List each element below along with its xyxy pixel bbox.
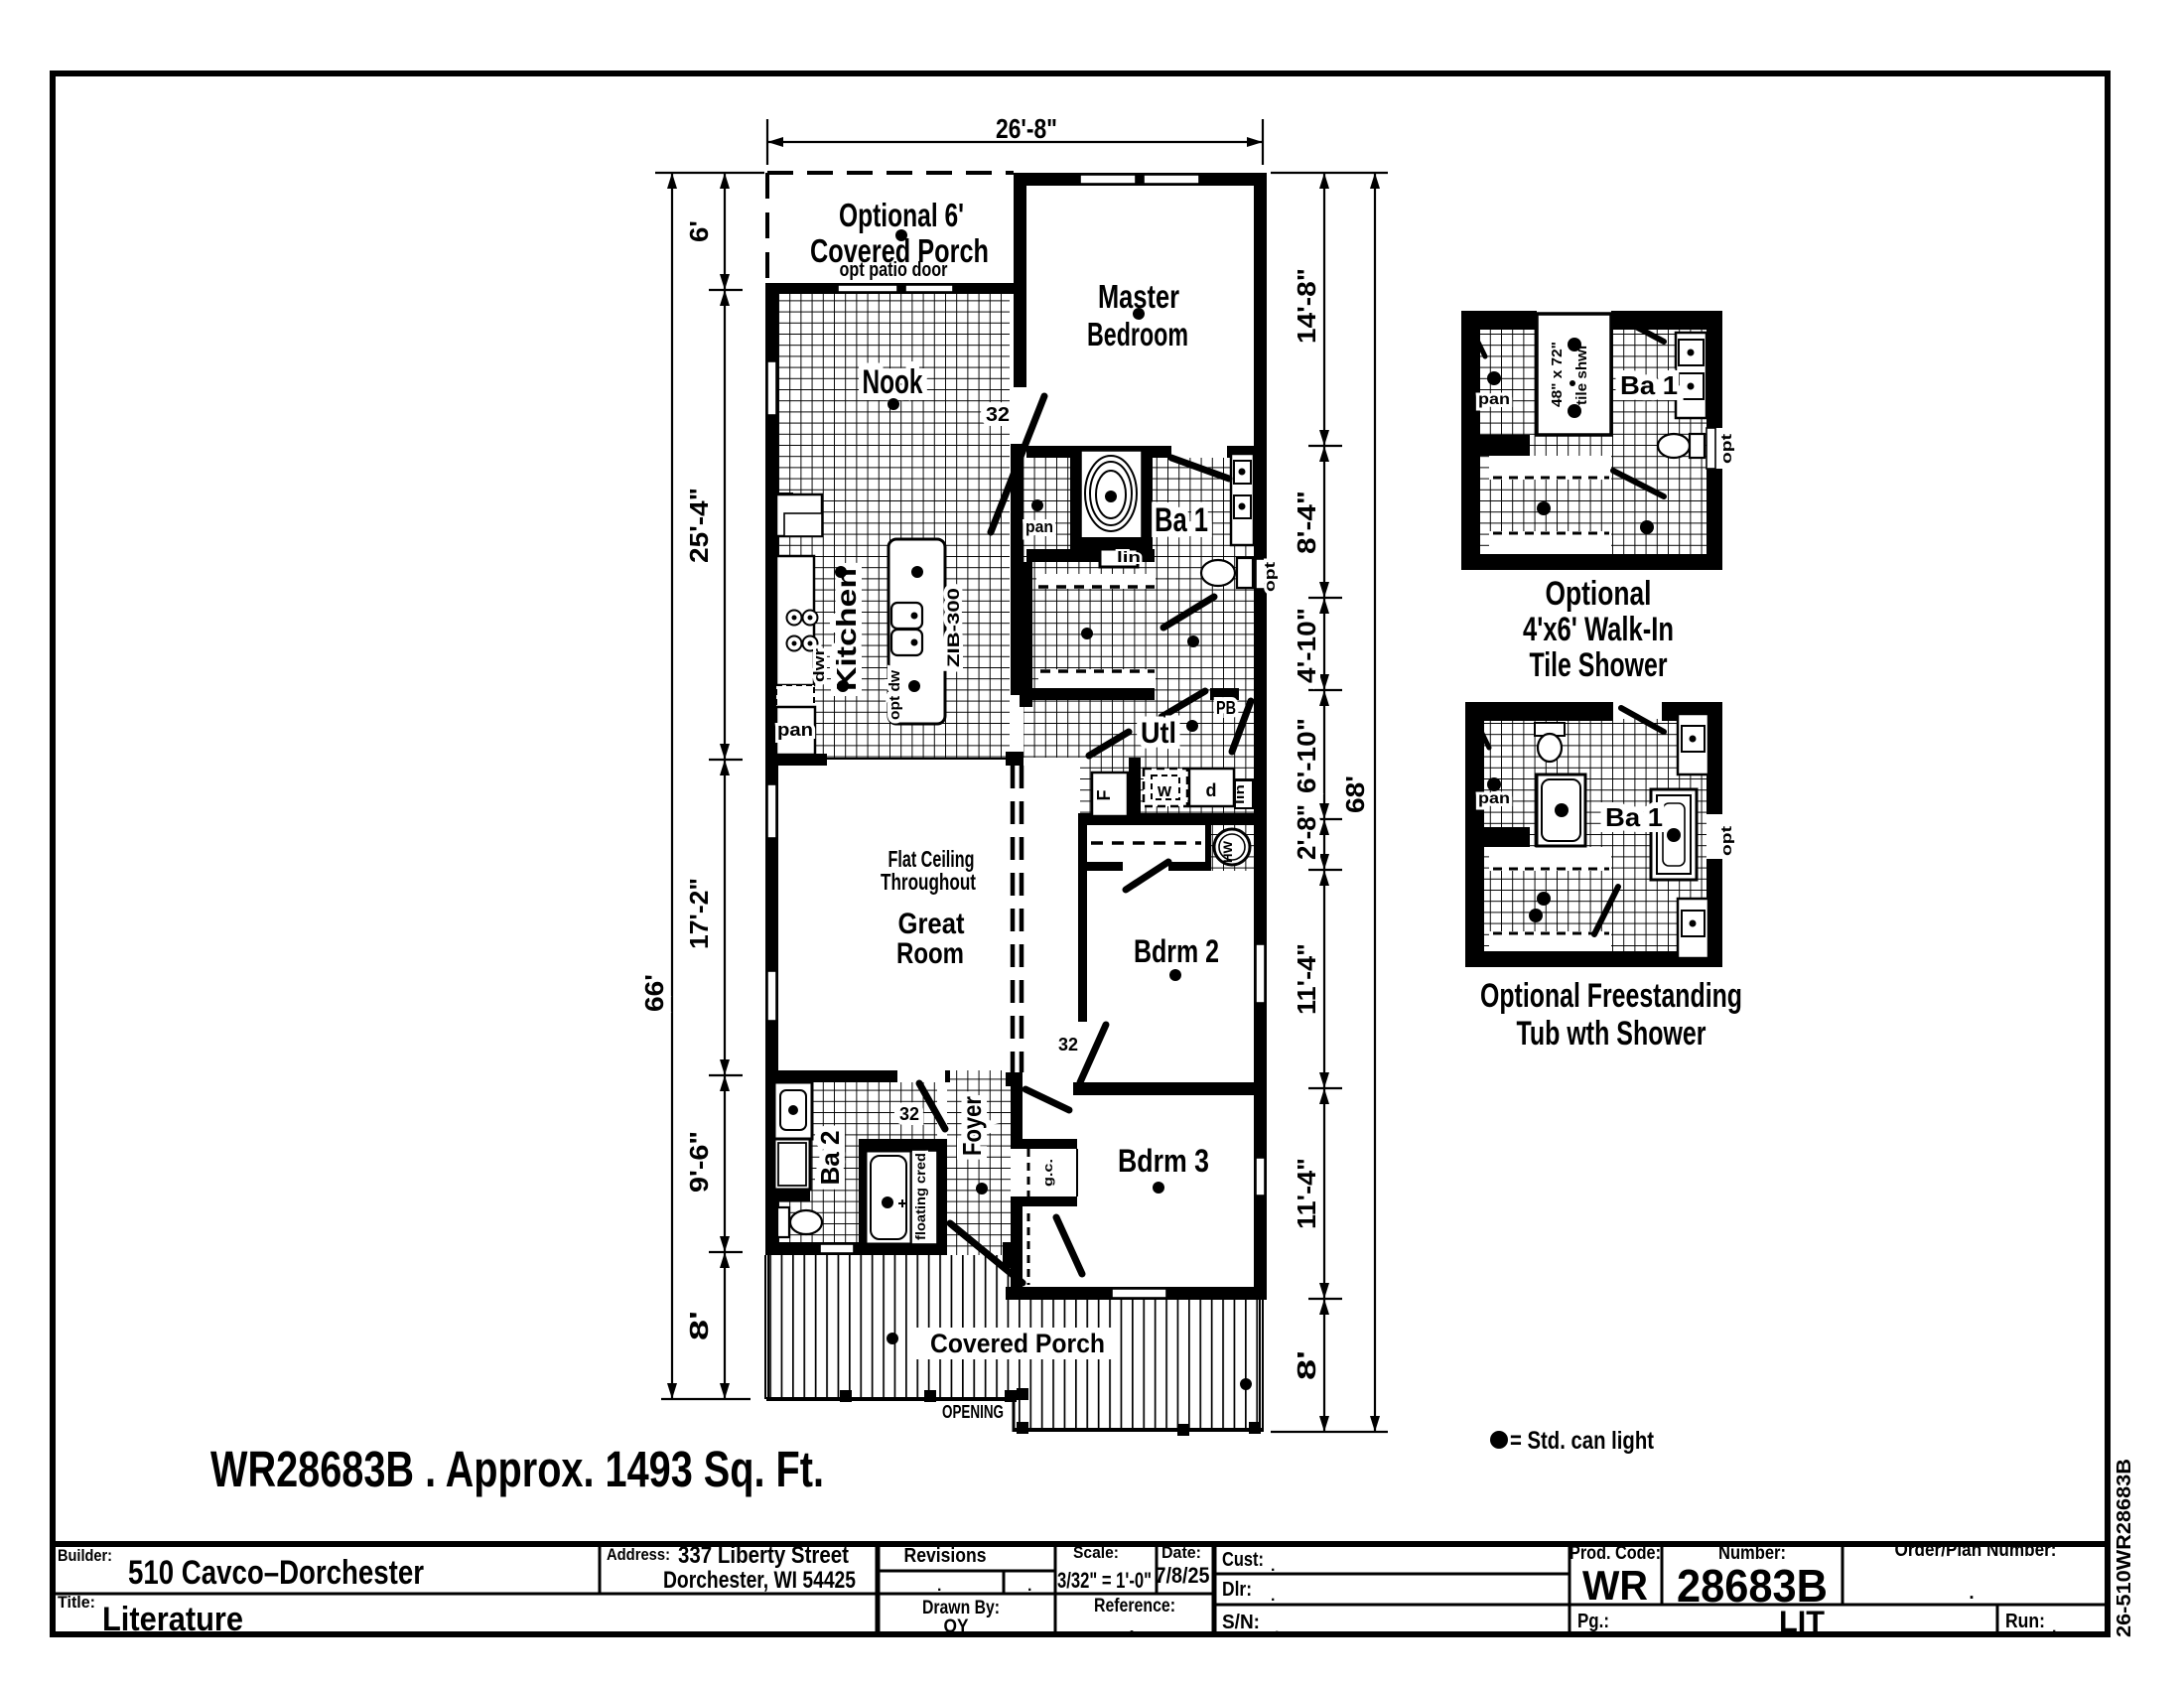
svg-text:LIT: LIT [1779,1606,1825,1638]
svg-text:.: . [1969,1583,1974,1604]
svg-text:opt: opt [1262,562,1279,592]
svg-text:Tile Shower: Tile Shower [1530,646,1668,684]
svg-text:8'-4": 8'-4" [1292,491,1321,554]
svg-text:.: . [1275,1620,1279,1637]
svg-text:17'-2": 17'-2" [684,878,714,949]
svg-text:11'-4": 11'-4" [1292,1158,1321,1229]
svg-text:Bdrm 3: Bdrm 3 [1118,1143,1209,1179]
svg-text:OY: OY [944,1617,969,1637]
svg-text:WR: WR [1582,1562,1648,1609]
svg-text:lin: lin [1232,784,1247,804]
svg-text:Dlr:: Dlr: [1222,1579,1252,1601]
svg-text:26-510WR28683B: 26-510WR28683B [2114,1459,2135,1637]
svg-text:Title:: Title: [58,1593,95,1612]
svg-text:opt: opt [1718,434,1735,464]
svg-text:Optional Freestanding: Optional Freestanding [1480,977,1742,1015]
svg-text:WR28683B . Approx. 1493 Sq. F: WR28683B . Approx. 1493 Sq. Ft. [210,1441,824,1497]
svg-text:tile shwr: tile shwr [1573,344,1590,405]
svg-text:Literature: Literature [102,1601,243,1638]
svg-text:2'-8": 2'-8" [1292,804,1321,860]
svg-text:pan: pan [1025,517,1053,536]
svg-text:6'-10": 6'-10" [1292,718,1321,793]
svg-text:32: 32 [986,404,1010,426]
svg-text:F: F [1094,790,1114,801]
svg-text:Address:: Address: [607,1545,670,1564]
svg-text:Optional: Optional [1546,575,1652,613]
svg-text:floating cred: floating cred [912,1153,928,1240]
svg-text:6': 6' [684,220,714,242]
svg-text:3/32" = 1'-0": 3/32" = 1'-0" [1057,1568,1152,1593]
svg-text:Run:: Run: [2005,1611,2045,1632]
svg-text:510 Cavco–Dorchester: 510 Cavco–Dorchester [128,1554,424,1592]
svg-text:8': 8' [1292,1350,1321,1380]
svg-text:48" x 72": 48" x 72" [1549,342,1566,407]
svg-text:Ba 1: Ba 1 [1155,501,1208,539]
svg-text:w: w [1157,780,1172,800]
svg-text:opt dw: opt dw [887,670,903,720]
svg-text:.: . [937,1578,941,1595]
svg-text:PB: PB [1216,698,1236,718]
svg-text:pan: pan [777,720,813,740]
svg-text:Bedroom: Bedroom [1087,316,1188,352]
svg-text:opt: opt [1718,826,1735,856]
svg-text:14'-8": 14'-8" [1292,268,1321,344]
svg-text:ZIB-300: ZIB-300 [944,588,963,667]
svg-text:Cust:: Cust: [1222,1549,1264,1571]
svg-text:25'-4": 25'-4" [684,488,714,563]
svg-text:32: 32 [899,1104,919,1124]
svg-text:Order/Plan Number:: Order/Plan Number: [1895,1540,2057,1561]
svg-text:Tub wth Shower: Tub wth Shower [1517,1015,1706,1053]
svg-text:Ba 1: Ba 1 [1620,370,1678,400]
svg-text:4'-10": 4'-10" [1292,608,1321,683]
svg-text:Scale:: Scale: [1073,1543,1119,1562]
svg-text:Covered Porch: Covered Porch [930,1329,1105,1358]
svg-text:Nook: Nook [863,363,923,401]
svg-text:d: d [1206,780,1217,800]
svg-text:Bdrm 2: Bdrm 2 [1134,933,1219,969]
svg-text:Throughout: Throughout [881,869,976,895]
svg-text:Room: Room [896,937,964,970]
svg-text:Date:: Date: [1161,1543,1201,1562]
svg-text:g.c.: g.c. [1040,1159,1055,1187]
svg-text:dwr: dwr [811,648,828,682]
svg-text:pan: pan [1478,391,1510,408]
svg-text:pan: pan [1478,790,1510,807]
svg-text:OPENING: OPENING [942,1402,1004,1422]
svg-text:Ba 1: Ba 1 [1605,802,1663,832]
svg-text:.: . [1129,1618,1134,1638]
svg-text:66': 66' [639,974,669,1012]
svg-text:Pg.:: Pg.: [1577,1611,1609,1632]
svg-text:opt patio door: opt patio door [840,259,948,281]
svg-text:Kitchen: Kitchen [831,568,862,691]
svg-text:Foyer: Foyer [957,1096,987,1156]
svg-text:Ba 2: Ba 2 [815,1131,845,1186]
svg-text:26'-8": 26'-8" [996,113,1057,144]
svg-text:Great: Great [898,908,965,940]
svg-text:HW: HW [1221,840,1235,863]
svg-text:7/8/25: 7/8/25 [1156,1563,1210,1588]
svg-text:32: 32 [1058,1035,1078,1055]
svg-text:Optional 6': Optional 6' [839,197,964,233]
svg-text:Utl: Utl [1141,717,1176,750]
svg-text:Reference:: Reference: [1094,1596,1175,1617]
svg-text:4'x6' Walk-In: 4'x6' Walk-In [1523,611,1674,648]
svg-text:11'-4": 11'-4" [1292,943,1321,1015]
svg-text:9'-6": 9'-6" [684,1131,714,1193]
svg-text:.: . [2052,1619,2056,1636]
svg-text:Builder:: Builder: [58,1546,112,1565]
svg-text:Dorchester, WI 54425: Dorchester, WI 54425 [663,1567,856,1594]
svg-text:.: . [1027,1578,1031,1595]
svg-text:28683B: 28683B [1677,1560,1828,1612]
svg-text:Drawn By:: Drawn By: [922,1598,1000,1618]
svg-text:lin: lin [1117,549,1141,566]
svg-text:337 Liberty Street: 337 Liberty Street [678,1542,849,1569]
svg-text:.: . [1271,1558,1275,1575]
svg-text:= Std. can light: = Std. can light [1510,1427,1655,1455]
svg-text:68': 68' [1340,775,1370,813]
svg-text:S/N:: S/N: [1222,1612,1260,1633]
svg-text:Prod. Code:: Prod. Code: [1570,1543,1661,1564]
svg-text:8': 8' [684,1311,714,1340]
svg-text:Revisions: Revisions [904,1545,987,1567]
svg-text:.: . [1271,1588,1275,1605]
